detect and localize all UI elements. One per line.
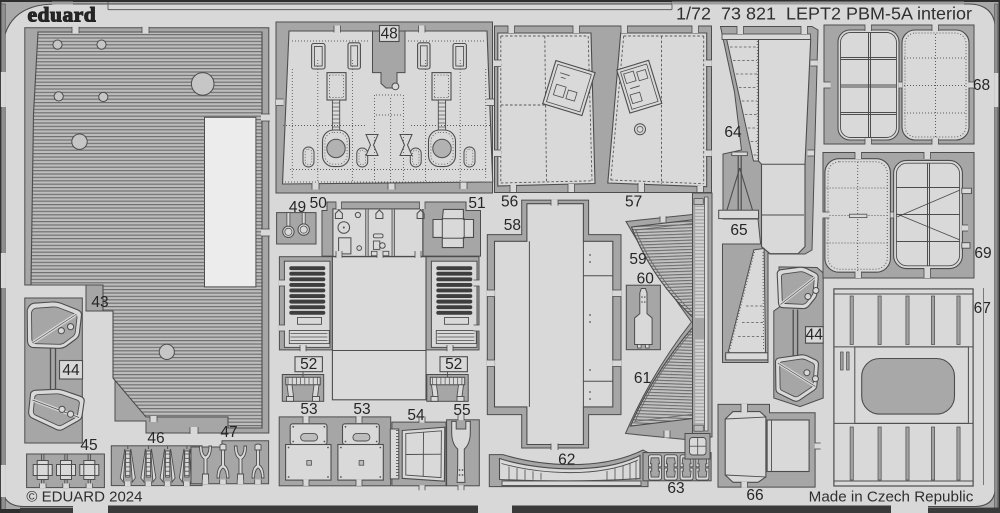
- svg-text:44: 44: [62, 362, 80, 379]
- svg-text:48: 48: [381, 26, 398, 43]
- svg-text:47: 47: [220, 424, 237, 441]
- svg-text:58: 58: [504, 217, 521, 234]
- svg-text:55: 55: [453, 402, 470, 419]
- svg-text:53: 53: [353, 401, 370, 418]
- svg-text:eduard: eduard: [28, 3, 97, 27]
- svg-text:67: 67: [974, 300, 991, 317]
- svg-text:43: 43: [91, 294, 108, 311]
- svg-text:44: 44: [806, 327, 824, 344]
- svg-text:60: 60: [637, 271, 655, 288]
- svg-text:59: 59: [629, 251, 646, 268]
- svg-text:64: 64: [724, 124, 742, 141]
- svg-text:45: 45: [80, 437, 97, 454]
- svg-text:65: 65: [730, 222, 747, 239]
- svg-text:51: 51: [468, 195, 485, 212]
- svg-text:53: 53: [300, 401, 317, 418]
- svg-text:61: 61: [634, 370, 651, 387]
- svg-text:56: 56: [501, 194, 518, 211]
- svg-text:52: 52: [445, 356, 462, 373]
- svg-text:69: 69: [974, 245, 991, 262]
- svg-text:1/72 73 821 LEPT2 PBM-5A int: 1/72 73 821 LEPT2 PBM-5A interior: [676, 4, 972, 24]
- svg-text:62: 62: [558, 452, 575, 469]
- svg-text:54: 54: [407, 407, 425, 424]
- svg-text:49: 49: [289, 199, 306, 216]
- svg-text:52: 52: [300, 356, 317, 373]
- svg-text:66: 66: [746, 487, 763, 504]
- svg-text:46: 46: [147, 430, 164, 447]
- svg-text:57: 57: [625, 194, 642, 211]
- svg-text:63: 63: [667, 480, 684, 497]
- svg-text:68: 68: [973, 77, 990, 94]
- svg-text:50: 50: [310, 195, 328, 212]
